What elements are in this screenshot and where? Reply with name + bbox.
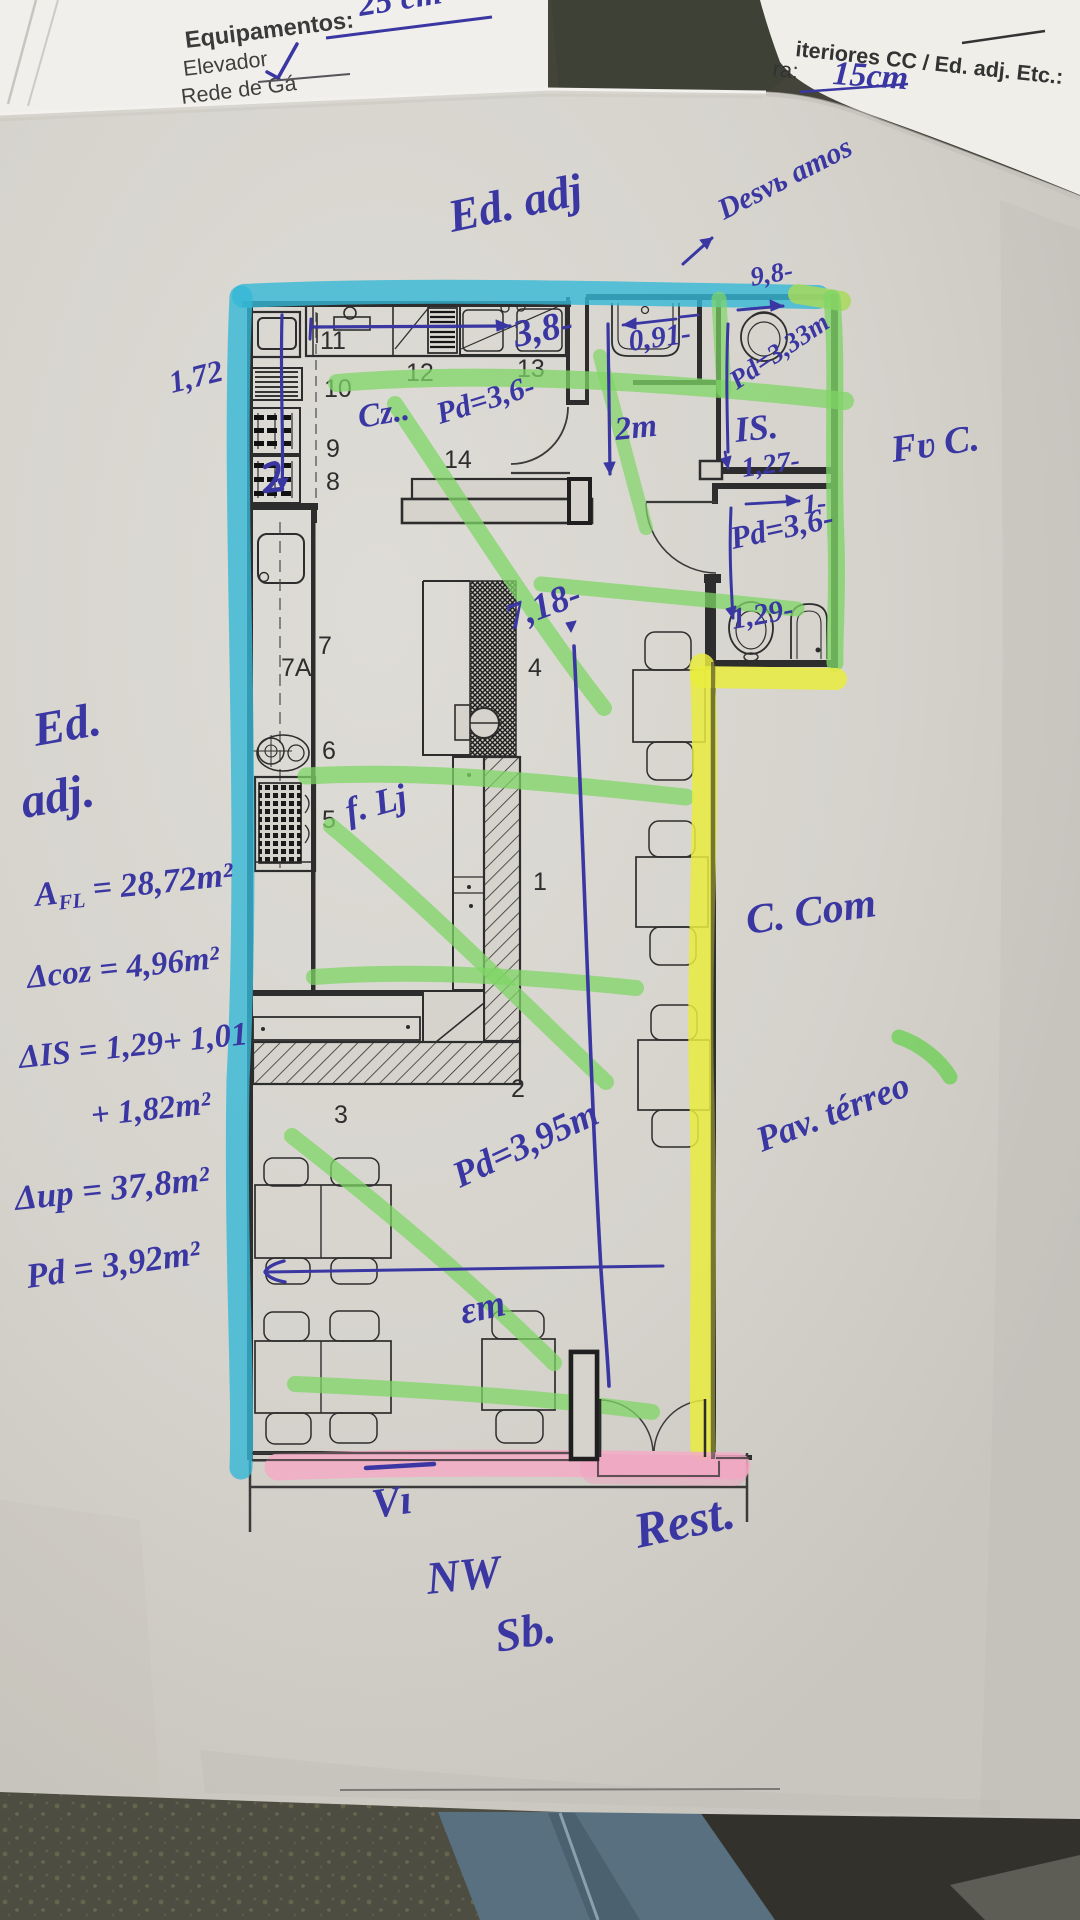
svg-text:15cm: 15cm [831, 55, 909, 97]
svg-text:7: 7 [318, 632, 332, 660]
svg-text:4: 4 [528, 654, 542, 682]
svg-text:6: 6 [322, 737, 336, 765]
svg-text:ra:: ra: [771, 56, 799, 84]
svg-text:Sb.: Sb. [491, 1601, 559, 1662]
svg-text:1: 1 [533, 868, 547, 896]
svg-text:2m: 2m [612, 408, 659, 448]
svg-text:9: 9 [326, 435, 340, 463]
svg-text:Vı: Vı [369, 1477, 415, 1528]
svg-text:7A: 7A [281, 654, 312, 682]
svg-text:NW: NW [423, 1545, 506, 1604]
svg-text:IS.: IS. [732, 406, 780, 450]
svg-text:3: 3 [334, 1101, 348, 1129]
svg-text:8: 8 [326, 468, 340, 496]
svg-text:11: 11 [320, 327, 346, 355]
svg-text:2: 2 [511, 1075, 525, 1103]
